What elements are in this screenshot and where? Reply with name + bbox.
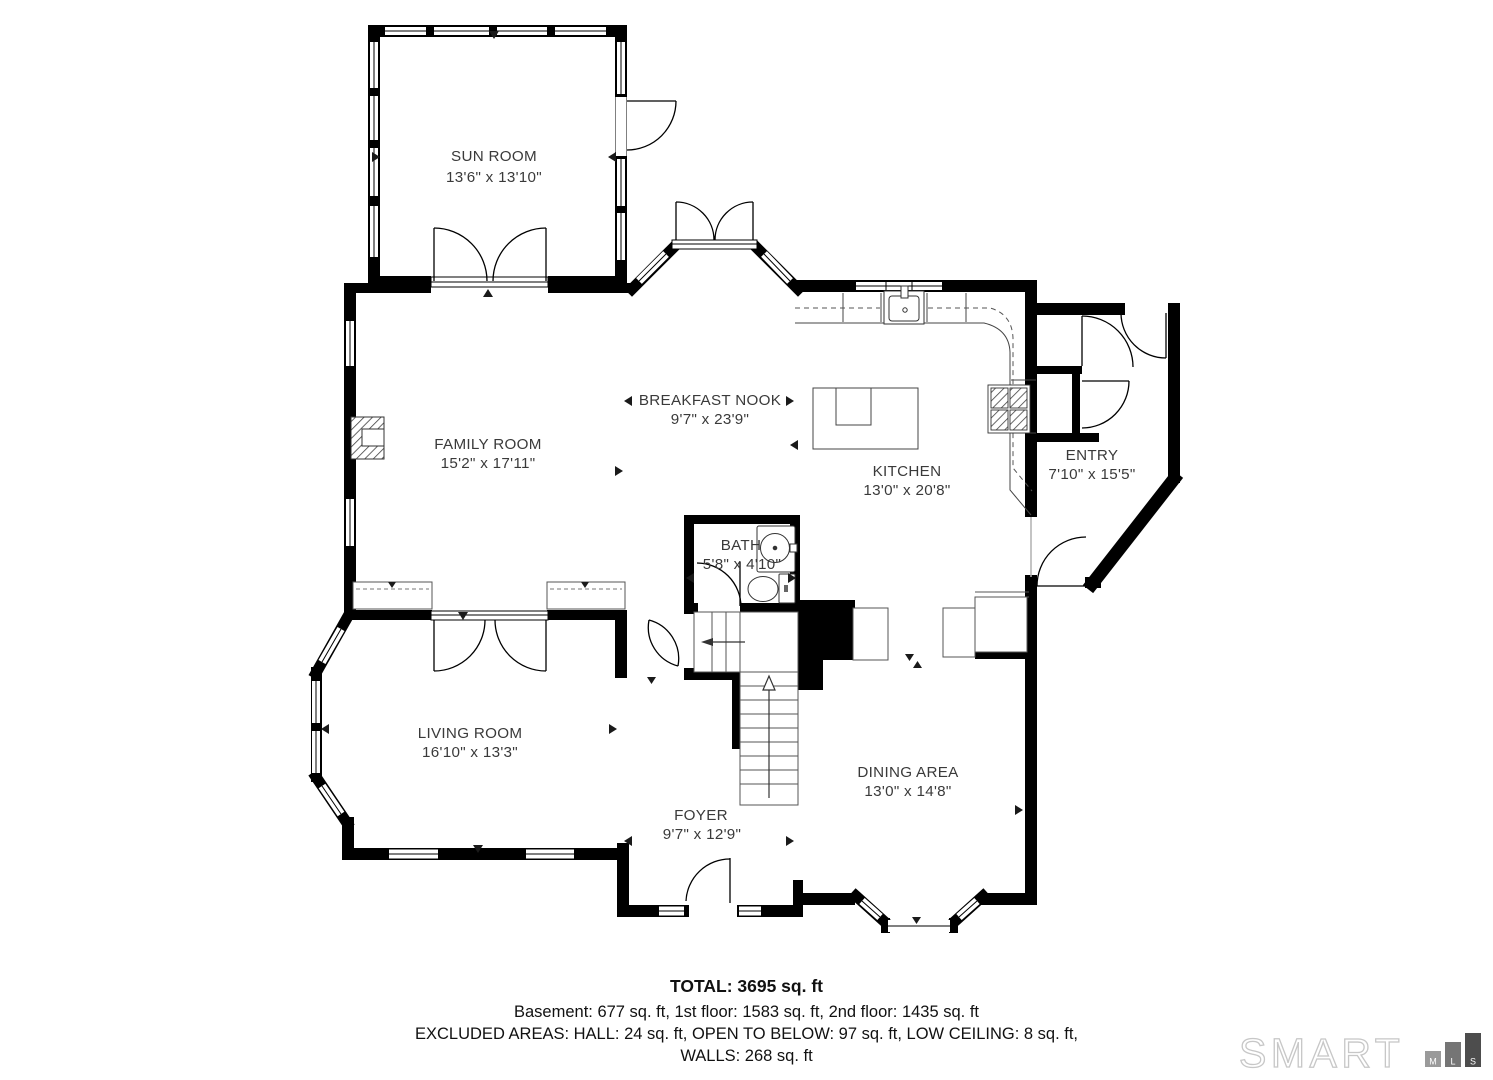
floor-areas-text: Basement: 677 sq. ft, 1st floor: 1583 sq… — [0, 1002, 1493, 1024]
room-dims-family-room: 15'2" x 17'11" — [441, 455, 536, 472]
kitchen-fixtures — [795, 286, 1036, 515]
room-label-foyer: FOYER — [674, 807, 728, 824]
foyer: FOYER 9'7" x 12'9" — [663, 807, 741, 843]
room-dims-entry: 7'10" x 15'5" — [1048, 466, 1135, 483]
hall-swing-door — [648, 620, 678, 666]
room-dims-kitchen: 13'0" x 20'8" — [863, 482, 950, 499]
floorplan-svg: SUN ROOM 13'6" x 13'10" FAMILY ROOM 15'2… — [0, 0, 1493, 1080]
entry-closet-door — [1082, 316, 1133, 367]
room-label-sun-room: SUN ROOM — [451, 148, 537, 165]
stove — [988, 385, 1030, 433]
room-label-family-room: FAMILY ROOM — [434, 436, 541, 453]
room-dims-breakfast-nook: 9'7" x 23'9" — [671, 411, 749, 428]
logo-wordmark: SMART — [1239, 1030, 1404, 1076]
room-dims-sun-room: 13'6" x 13'10" — [446, 169, 542, 186]
fireplace — [351, 417, 384, 459]
diagonal-walls — [316, 247, 1174, 923]
breakfast-nook: BREAKFAST NOOK 9'7" x 23'9" — [639, 392, 781, 428]
staircase — [694, 612, 798, 805]
room-dims-foyer: 9'7" x 12'9" — [663, 826, 741, 843]
smartmls-logo: SMART M L S — [1237, 1028, 1487, 1076]
logo-letter-m: M — [1429, 1057, 1437, 1067]
room-dims-dining-area: 13'0" x 14'8" — [864, 783, 951, 800]
living-room-french-doors — [434, 620, 546, 671]
logo-letter-s: S — [1470, 1057, 1476, 1067]
sunroom-side-door — [627, 101, 676, 150]
toilet — [748, 574, 795, 603]
room-label-breakfast-nook: BREAKFAST NOOK — [639, 392, 781, 409]
room-dims-bath: 5'8" x 4'10" — [703, 556, 781, 573]
entry-closet2-door — [1082, 381, 1129, 428]
dining-area: DINING AREA 13'0" x 14'8" — [857, 764, 959, 800]
family-room: FAMILY ROOM 15'2" x 17'11" — [434, 436, 541, 472]
entry: ENTRY 7'10" x 15'5" — [1048, 447, 1135, 483]
sunroom-french-doors — [434, 228, 546, 281]
nook-french-doors — [676, 202, 753, 240]
room-label-kitchen: KITCHEN — [873, 463, 942, 480]
floorplan-page: SUN ROOM 13'6" x 13'10" FAMILY ROOM 15'2… — [0, 0, 1493, 1080]
entry-exterior-door — [1121, 313, 1166, 358]
room-label-living-room: LIVING ROOM — [418, 725, 523, 742]
room-label-entry: ENTRY — [1066, 447, 1119, 464]
front-door — [686, 858, 730, 903]
logo-letter-l: L — [1450, 1057, 1455, 1067]
sun-room: SUN ROOM 13'6" x 13'10" — [446, 148, 542, 186]
entry-dining-door — [1037, 537, 1086, 586]
total-area-text: TOTAL: 3695 sq. ft — [0, 976, 1493, 997]
logo-mls-boxes: M L S — [1425, 1033, 1481, 1067]
room-label-dining-area: DINING AREA — [857, 764, 959, 781]
living-room: LIVING ROOM 16'10" x 13'3" — [418, 725, 523, 761]
doors — [434, 101, 1166, 903]
dining-cabinets — [853, 592, 1029, 660]
kitchen: KITCHEN 13'0" x 20'8" — [863, 463, 950, 499]
room-label-bath: BATH — [721, 537, 762, 554]
room-dims-living-room: 16'10" x 13'3" — [422, 744, 518, 761]
kitchen-sink — [884, 286, 924, 324]
kitchen-island — [813, 388, 918, 449]
